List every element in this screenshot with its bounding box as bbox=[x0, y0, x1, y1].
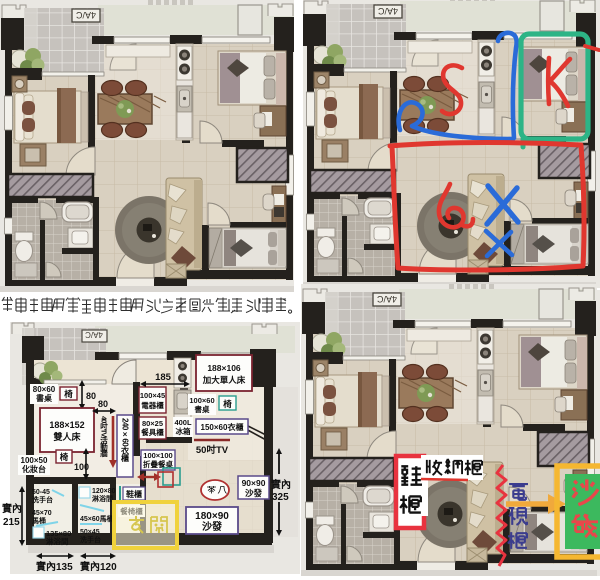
svg-text:180×90: 180×90 bbox=[195, 511, 229, 522]
svg-text:洗手台: 洗手台 bbox=[32, 495, 53, 504]
svg-text:電器櫃: 電器櫃 bbox=[141, 400, 164, 410]
svg-text:215: 215 bbox=[3, 517, 20, 528]
svg-text:325: 325 bbox=[272, 492, 289, 503]
svg-text:椅: 椅 bbox=[60, 452, 69, 462]
svg-text:90×90: 90×90 bbox=[242, 478, 266, 488]
svg-text:50×45: 50×45 bbox=[80, 529, 100, 536]
svg-text:冰箱: 冰箱 bbox=[176, 426, 191, 436]
svg-text:沙發: 沙發 bbox=[245, 488, 263, 498]
svg-text:100×50: 100×50 bbox=[21, 456, 48, 465]
svg-text:80×25: 80×25 bbox=[142, 419, 163, 428]
svg-text:50-45: 50-45 bbox=[32, 489, 50, 496]
svg-text:淋浴間: 淋浴間 bbox=[46, 536, 69, 546]
svg-text:100: 100 bbox=[74, 462, 89, 472]
svg-text:加大單人床: 加大單人床 bbox=[202, 375, 246, 385]
svg-text:40吋TV活動牆: 40吋TV活動牆 bbox=[99, 416, 108, 458]
svg-text:沙發: 沙發 bbox=[202, 520, 222, 533]
svg-text:150×60衣櫃: 150×60衣櫃 bbox=[201, 422, 244, 432]
svg-text:實內120: 實內120 bbox=[80, 560, 117, 573]
svg-text:50吋TV: 50吋TV bbox=[196, 444, 229, 456]
svg-text:80×60: 80×60 bbox=[33, 385, 56, 394]
svg-text:洗手台: 洗手台 bbox=[80, 535, 101, 544]
svg-text:120×80: 120×80 bbox=[92, 488, 116, 495]
svg-text:80: 80 bbox=[98, 399, 108, 409]
svg-text:椅: 椅 bbox=[223, 399, 232, 409]
svg-text:書桌: 書桌 bbox=[36, 393, 53, 403]
svg-text:實內: 實內 bbox=[271, 478, 291, 491]
svg-text:實內135: 實內135 bbox=[36, 560, 73, 573]
svg-text:185: 185 bbox=[155, 372, 172, 383]
svg-text:餐具櫃: 餐具櫃 bbox=[140, 427, 164, 437]
svg-text:100×45: 100×45 bbox=[140, 391, 165, 400]
svg-text:45×60馬桶: 45×60馬桶 bbox=[80, 514, 114, 523]
svg-text:45×70: 45×70 bbox=[32, 510, 52, 517]
svg-text:100×100: 100×100 bbox=[143, 451, 172, 460]
svg-text:淋浴間: 淋浴間 bbox=[92, 494, 113, 503]
svg-text:實內: 實內 bbox=[2, 502, 22, 515]
svg-text:188×152: 188×152 bbox=[49, 420, 84, 430]
svg-text:100×60: 100×60 bbox=[189, 396, 214, 405]
svg-text:椅: 椅 bbox=[64, 389, 73, 399]
svg-text:化妝台: 化妝台 bbox=[22, 464, 46, 474]
svg-text:書桌: 書桌 bbox=[195, 404, 210, 414]
svg-text:4A/C: 4A/C bbox=[85, 330, 103, 339]
svg-text:雙人床: 雙人床 bbox=[53, 431, 81, 442]
svg-text:240×60衣櫃: 240×60衣櫃 bbox=[121, 418, 130, 463]
svg-text:188×106: 188×106 bbox=[207, 363, 241, 373]
svg-text:80: 80 bbox=[86, 391, 96, 401]
svg-text:400L: 400L bbox=[174, 418, 192, 427]
svg-text:鞋櫃: 鞋櫃 bbox=[126, 489, 142, 499]
